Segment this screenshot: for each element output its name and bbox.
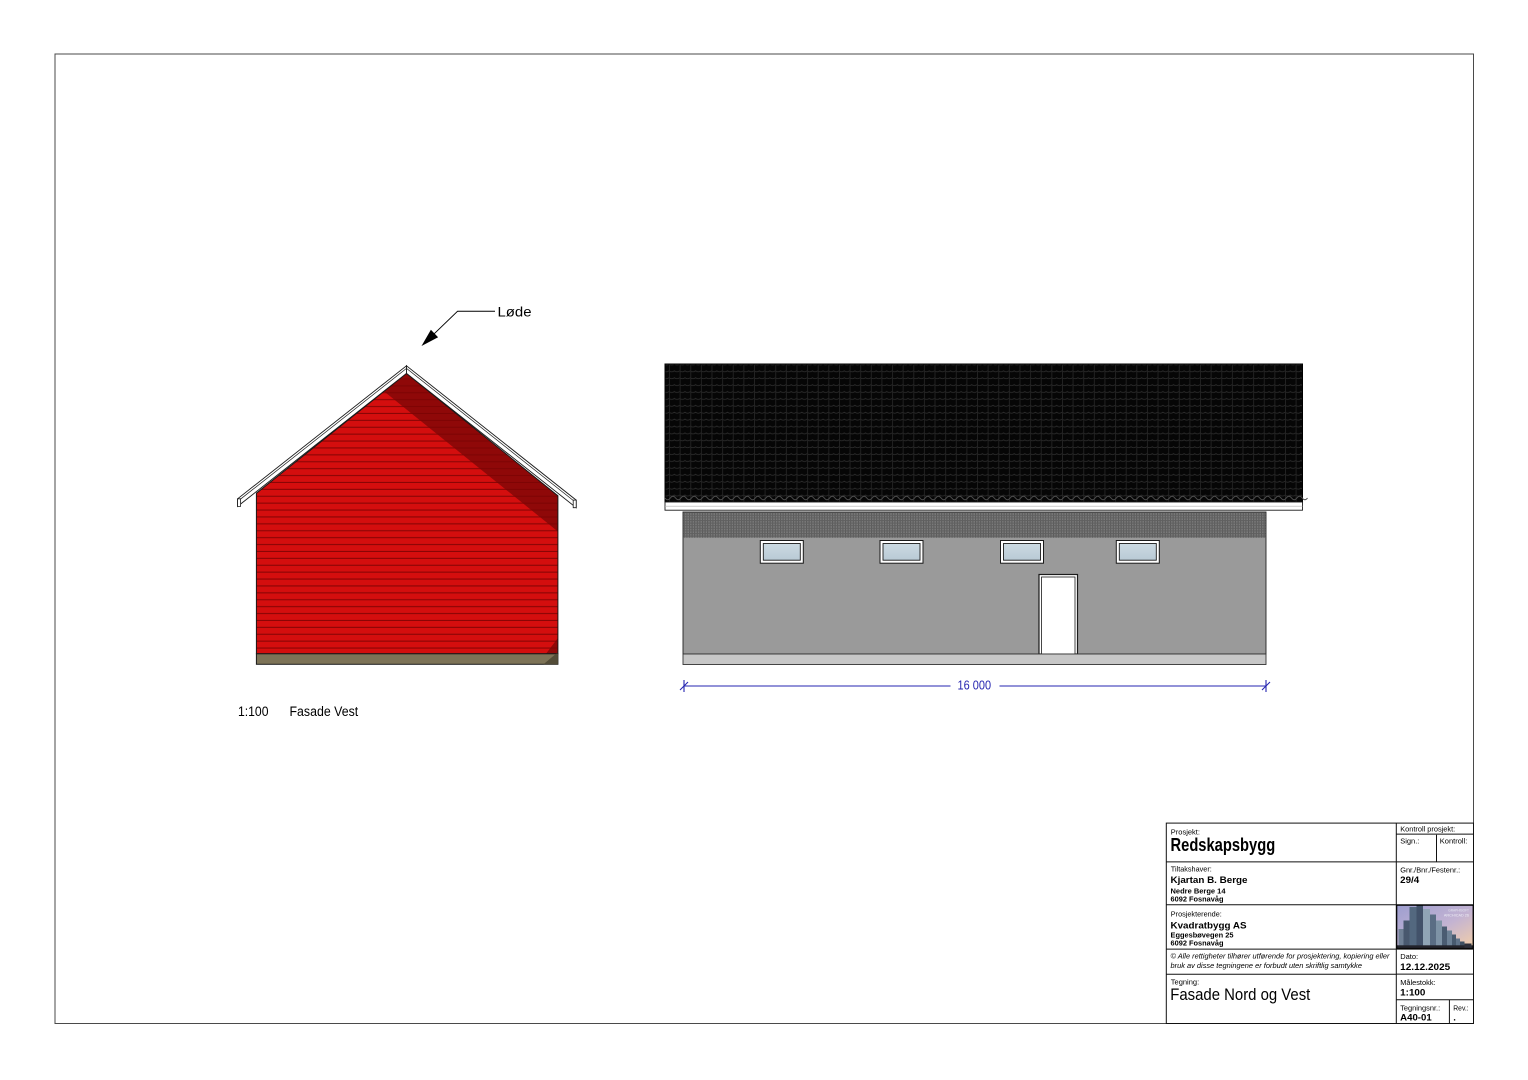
svg-text:Sign.:: Sign.:	[1400, 837, 1419, 846]
svg-text:ARCHICAD 26: ARCHICAD 26	[1444, 914, 1469, 918]
svg-text:.: .	[1453, 1013, 1456, 1024]
svg-text:12.12.2025: 12.12.2025	[1400, 962, 1451, 973]
svg-text:Kontroll:: Kontroll:	[1440, 837, 1468, 846]
svg-text:16 000: 16 000	[958, 679, 992, 693]
svg-text:Kjartan B. Berge: Kjartan B. Berge	[1171, 875, 1248, 886]
svg-text:Tiltakshaver:: Tiltakshaver:	[1171, 865, 1212, 874]
svg-text:1:100: 1:100	[238, 704, 269, 719]
svg-text:29/4: 29/4	[1400, 875, 1420, 886]
svg-text:© Alle rettigheter tilhører ut: © Alle rettigheter tilhører utførende fo…	[1171, 952, 1390, 961]
svg-text:GRAPHISOFT: GRAPHISOFT	[1448, 909, 1469, 913]
svg-text:Løde: Løde	[498, 305, 532, 320]
svg-text:Rev.:: Rev.:	[1453, 1003, 1468, 1012]
svg-text:1:100: 1:100	[1400, 988, 1425, 999]
svg-text:Fasade Vest: Fasade Vest	[290, 704, 359, 719]
svg-text:Målestokk:: Målestokk:	[1400, 978, 1435, 987]
svg-text:Tegningsnr.:: Tegningsnr.:	[1400, 1003, 1440, 1012]
svg-text:Prosjekterende:: Prosjekterende:	[1171, 910, 1222, 919]
svg-text:6092 Fosnavåg: 6092 Fosnavåg	[1171, 939, 1224, 948]
svg-text:Redskapsbygg: Redskapsbygg	[1171, 835, 1276, 855]
svg-text:Dato:: Dato:	[1400, 952, 1418, 961]
svg-text:bruk av disse tegningene er fo: bruk av disse tegningene er forbudt uten…	[1171, 961, 1363, 970]
svg-text:Fasade Nord og Vest: Fasade Nord og Vest	[1170, 986, 1310, 1004]
svg-text:Gnr./Bnr./Festenr.:: Gnr./Bnr./Festenr.:	[1400, 865, 1460, 874]
svg-text:Kontroll prosjekt:: Kontroll prosjekt:	[1400, 825, 1455, 834]
svg-text:A40-01: A40-01	[1400, 1013, 1432, 1024]
svg-text:6092 Fosnavåg: 6092 Fosnavåg	[1171, 895, 1224, 904]
